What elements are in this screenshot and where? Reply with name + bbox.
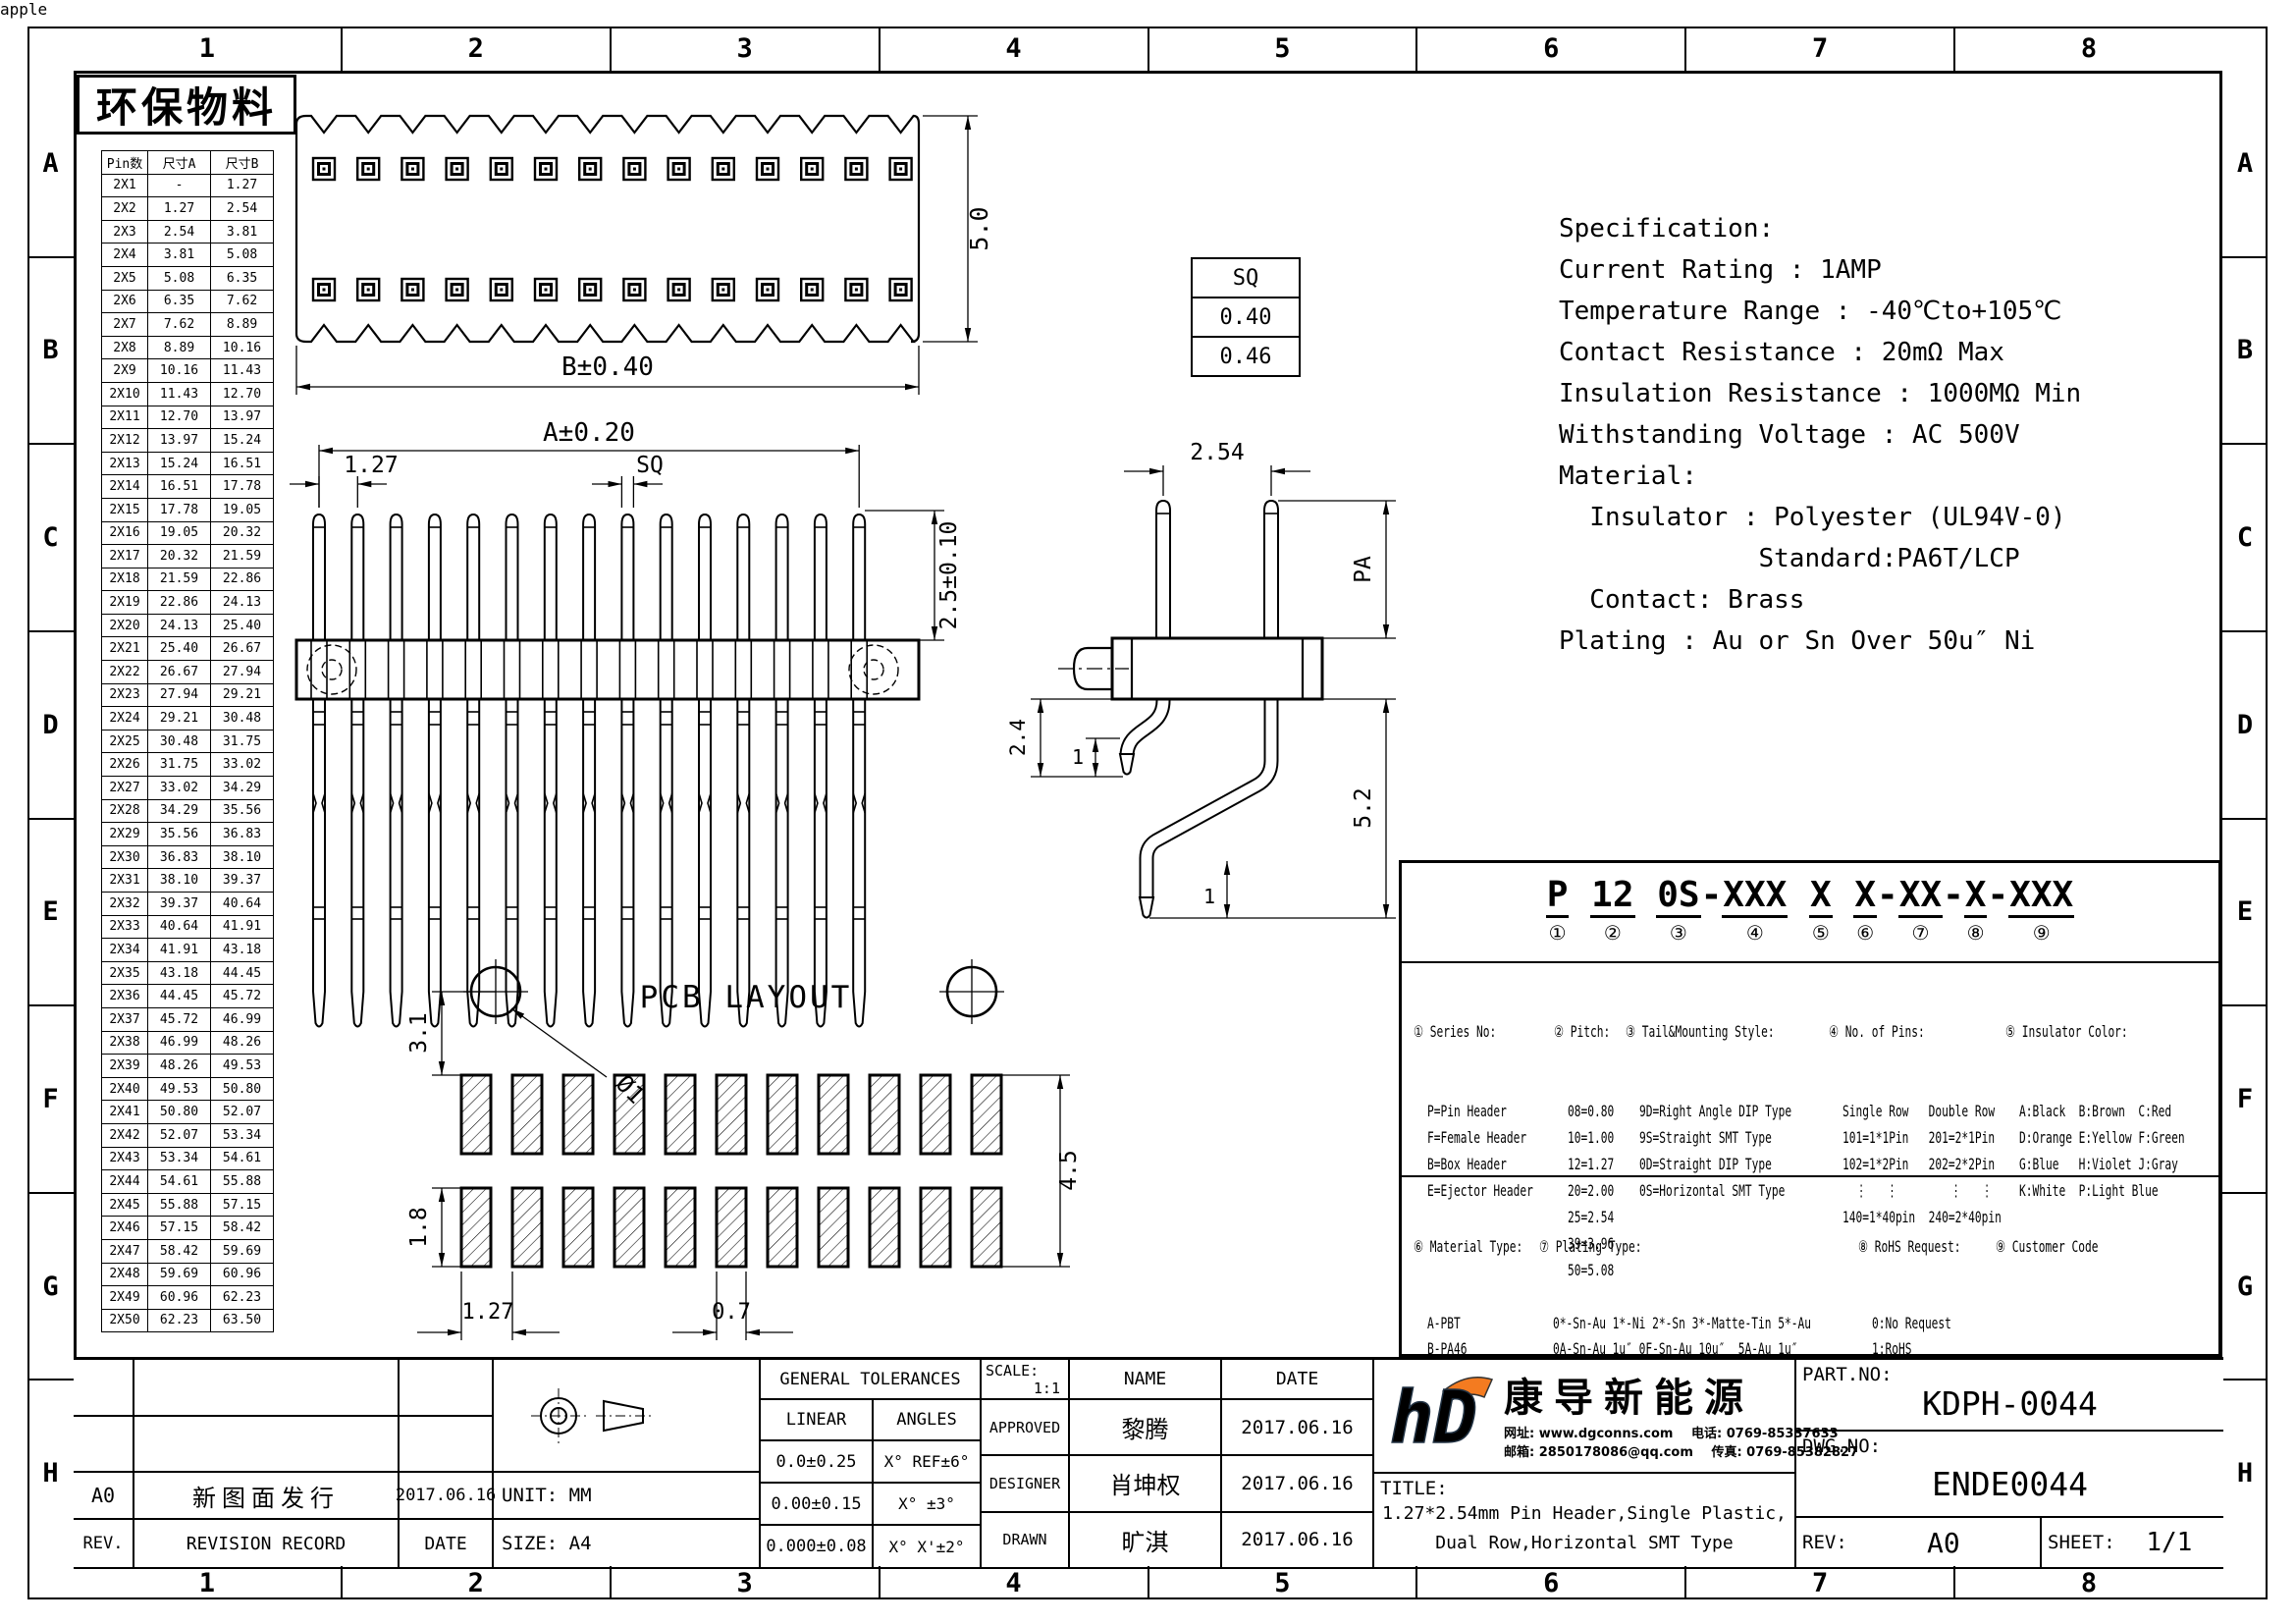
rev-empty — [74, 1360, 134, 1417]
rev-empty — [134, 1417, 400, 1473]
dim-body-height: 5.0 — [965, 206, 993, 250]
tolerances-title: GENERAL TOLERANCES — [761, 1360, 982, 1400]
spec-line: Contact: Brass — [1559, 579, 2081, 621]
dim-pin-square: SQ — [636, 453, 664, 478]
grid-col-label: 7 — [1686, 27, 1955, 71]
code-segment-index: ⑤ — [1812, 921, 1830, 945]
code-segment: X — [1964, 875, 1988, 918]
pin-table-row: 2X15 17.78 19.05 — [102, 498, 274, 521]
tol-angles-header: ANGLES — [874, 1400, 982, 1441]
unit-cell: UNIT: MM — [494, 1473, 761, 1520]
pin-table-row: 2X34 41.91 43.18 — [102, 939, 274, 962]
code-segment-index: ⑨ — [2033, 921, 2051, 945]
sq-size-table: SQ 0.40 0.46 — [1191, 257, 1301, 377]
code-separator: - — [1987, 875, 2008, 915]
pin-table-row: 2X3 2.54 3.81 — [102, 220, 274, 244]
grid-col-label: 4 — [881, 27, 1149, 71]
grid-col-label: 1 — [74, 1566, 343, 1599]
sq-header: SQ — [1192, 258, 1300, 298]
rev-empty — [74, 1417, 134, 1473]
pin-table-header: Pin数 尺寸A 尺寸B — [102, 151, 274, 175]
grid-row-label: F — [27, 1006, 74, 1194]
specification-block: Specification:Current Rating : 1AMPTempe… — [1559, 208, 2081, 662]
grid-row-label: C — [27, 445, 74, 632]
pin-table-row: 2X10 11.43 12.70 — [102, 382, 274, 406]
grid-col-label: 2 — [343, 27, 612, 71]
record-col-header: REVISION RECORD — [134, 1520, 400, 1569]
dim-pad-pitch: 1.27 — [462, 1300, 514, 1325]
sq-value-1: 0.40 — [1192, 298, 1300, 337]
pad-row-1 — [461, 1075, 1001, 1154]
rev-record: 新图面发行 — [134, 1473, 400, 1520]
drawing-title-line-2: Dual Row,Horizontal SMT Type — [1374, 1529, 1794, 1558]
pcb-layout-drawing: PCB LAYOUT Ø1 3.1 1.8 4.5 1.27 0.7 — [324, 943, 1090, 1355]
rev-empty — [400, 1360, 494, 1417]
spec-line: Insulation Resistance : 1000MΩ Min — [1559, 373, 2081, 414]
rev-cell: REV: A0 — [1796, 1518, 2042, 1569]
code-segment-index: ② — [1604, 921, 1622, 945]
ordering-divider-1 — [1402, 961, 2218, 963]
pin-table-row: 2X50 62.23 63.50 — [102, 1309, 274, 1332]
grid-row-label: F — [2222, 1006, 2268, 1194]
pin-table-row: 2X13 15.24 16.51 — [102, 452, 274, 475]
grid-col-label: 6 — [1417, 27, 1686, 71]
grid-band-left: ABCDEFGH — [27, 71, 74, 1566]
tol-linear-1: 0.0±0.25 — [761, 1441, 874, 1484]
drawing-sheet: 12345678 12345678 ABCDEFGH ABCDEFGH 环保物料… — [0, 0, 2296, 1624]
grid-row-label: E — [2222, 820, 2268, 1007]
approval-name: 黎腾 — [1070, 1400, 1222, 1456]
pin-table-row: 2X21 25.40 26.67 — [102, 637, 274, 661]
company-cell: hD 康导新能源 网址: www.dgconns.com 电话: 0769-85… — [1374, 1360, 1796, 1474]
dim-pin-exposed: 2.5±0.10 — [936, 521, 962, 630]
sheet-cell: SHEET: 1/1 — [2042, 1518, 2223, 1569]
code-segment: X — [1809, 875, 1833, 918]
spec-line: Current Rating : 1AMP — [1559, 249, 2081, 291]
spec-line: Standard:PA6T/LCP — [1559, 538, 2081, 579]
title-block: A0 新图面发行 2017.06.16 REV. REVISION RECORD… — [74, 1357, 2223, 1566]
contact-row-1 — [313, 158, 912, 180]
header-body-outline — [296, 116, 919, 342]
company-logo: hD — [1382, 1366, 1500, 1464]
code-separator: - — [1701, 875, 1723, 915]
top-view-drawing: 5.0 B±0.40 — [285, 98, 1001, 422]
rev-empty — [134, 1360, 400, 1417]
approval-role: APPROVED — [982, 1400, 1070, 1456]
pin-table-row: 2X11 12.70 13.97 — [102, 406, 274, 429]
code-segment: XXX — [2008, 875, 2074, 918]
grid-row-label: D — [27, 632, 74, 820]
pin-table-row: 2X38 46.99 48.26 — [102, 1031, 274, 1055]
code-segment-index: ⑥ — [1856, 921, 1874, 945]
third-angle-projection-icon — [521, 1381, 678, 1450]
dim-pitch: 1.27 — [344, 453, 398, 478]
code-separator — [1788, 875, 1809, 915]
pin-table-row: 2X43 53.34 54.61 — [102, 1147, 274, 1170]
grid-col-label: 5 — [1149, 1566, 1418, 1599]
pin-table-row: 2X44 54.61 55.88 — [102, 1170, 274, 1194]
grid-col-label: 5 — [1149, 27, 1418, 71]
pin-table-row: 2X2 1.27 2.54 — [102, 197, 274, 221]
pin-table-row: 2X32 39.37 40.64 — [102, 893, 274, 916]
smt-lead-short — [1120, 701, 1163, 775]
code-segment: XX — [1898, 875, 1943, 918]
pin-table-row: 2X39 48.26 49.53 — [102, 1055, 274, 1078]
code-separator — [1833, 875, 1854, 915]
part-no-cell: PART.NO: KDPH-0044 — [1796, 1360, 2223, 1432]
part-number-code: P ① 12 ② 0S ③ - XXX ④ — [1402, 875, 2218, 945]
side-pin-front — [1156, 501, 1170, 638]
pin-table-row: 2X6 6.35 7.62 — [102, 290, 274, 313]
pin-table-row: 2X23 27.94 29.21 — [102, 683, 274, 707]
grid-col-label: 3 — [612, 27, 881, 71]
grid-col-label: 7 — [1686, 1566, 1955, 1599]
dim-pad-width: 0.7 — [712, 1300, 751, 1325]
ordering-customer-code: ⑨ Customer Code — [1996, 1183, 2098, 1311]
spec-line: Temperature Range : -40℃to+105℃ — [1559, 291, 2081, 332]
pin-table-row: 2X20 24.13 25.40 — [102, 614, 274, 637]
pin-table-row: 2X30 36.83 38.10 — [102, 845, 274, 869]
tol-linear-3: 0.000±0.08 — [761, 1526, 874, 1569]
grid-band-right: ABCDEFGH — [2222, 71, 2268, 1566]
pin-dimension-table: Pin数 尺寸A 尺寸B 2X1 - 1.27 2X2 1.27 2.54 2X… — [101, 150, 274, 1332]
dim-pad-height: 1.8 — [406, 1207, 432, 1248]
pin-table-row: 2X12 13.97 15.24 — [102, 429, 274, 453]
pin-table-row: 2X27 33.02 34.29 — [102, 777, 274, 800]
grid-band-top: 12345678 — [74, 27, 2222, 71]
grid-row-label: A — [2222, 71, 2268, 258]
pin-table-row: 2X33 40.64 41.91 — [102, 915, 274, 939]
dim-body-width: B±0.40 — [561, 352, 654, 382]
tol-linear-header: LINEAR — [761, 1400, 874, 1441]
scale-cell: SCALE: 1:1 — [982, 1360, 1070, 1400]
eco-material-stamp: 环保物料 — [77, 75, 296, 135]
grid-row-label: H — [27, 1380, 74, 1566]
part-number: KDPH-0044 — [1922, 1384, 2098, 1423]
rev-empty — [400, 1417, 494, 1473]
spec-line: Plating : Au or Sn Over 50u″ Ni — [1559, 621, 2081, 662]
grid-col-label: 2 — [343, 1566, 612, 1599]
dim-pa: PA — [1351, 556, 1376, 583]
pin-table-row: 2X42 52.07 53.34 — [102, 1123, 274, 1147]
title-cell: TITLE: 1.27*2.54mm Pin Header,Single Pla… — [1374, 1474, 1796, 1569]
header-body-front — [296, 640, 919, 699]
pad-row-2 — [461, 1188, 1001, 1267]
size-cell: SIZE: A4 — [494, 1520, 761, 1569]
pin-table-row: 2X9 10.16 11.43 — [102, 359, 274, 383]
tol-angle-1: X° REF±6° — [874, 1441, 982, 1484]
spec-line: Withstanding Voltage : AC 500V — [1559, 414, 2081, 456]
grid-row-label: G — [2222, 1194, 2268, 1381]
grid-col-label: 8 — [1955, 1566, 2222, 1599]
code-separator: - — [1943, 875, 1964, 915]
approval-name: 肖坤权 — [1070, 1456, 1222, 1512]
header-body-side — [1112, 638, 1322, 699]
tol-linear-2: 0.00±0.15 — [761, 1484, 874, 1526]
grid-col-label: 4 — [881, 1566, 1149, 1599]
grid-row-label: B — [27, 258, 74, 446]
dim-lead-height: 5.2 — [1351, 787, 1376, 829]
pin-table-row: 2X8 8.89 10.16 — [102, 336, 274, 359]
pin-table-row: 2X37 45.72 46.99 — [102, 1007, 274, 1031]
spec-line: Specification: — [1559, 208, 2081, 249]
pin-table-row: 2X16 19.05 20.32 — [102, 521, 274, 545]
pin-table-row: 2X19 22.86 24.13 — [102, 591, 274, 615]
pin-table-row: 2X7 7.62 8.89 — [102, 313, 274, 337]
pin-table-row: 2X24 29.21 30.48 — [102, 707, 274, 731]
drawing-title-line-1: 1.27*2.54mm Pin Header,Single Plastic, — [1374, 1499, 1794, 1529]
code-segment: P — [1546, 875, 1570, 918]
pin-table-row: 2X25 30.48 31.75 — [102, 730, 274, 753]
code-segment-index: ① — [1549, 921, 1567, 945]
company-email: 邮箱: 2850178086@qq.com — [1504, 1445, 1693, 1460]
dwg-no-cell: DWG.NO: ENDE0044 — [1796, 1432, 2223, 1518]
rev-col-header: REV. — [74, 1520, 134, 1569]
side-view-drawing: 2.54 PA 2.4 1 5.2 1 — [1001, 422, 1414, 952]
mounting-hole-right — [939, 959, 1004, 1024]
code-segment: 12 — [1590, 875, 1634, 918]
code-segment: 0S — [1656, 875, 1700, 918]
dim-lead-tail-2: 1 — [1203, 885, 1215, 908]
grid-col-label: 8 — [1955, 27, 2222, 71]
grid-row-label: G — [27, 1194, 74, 1381]
date-col-header: DATE — [400, 1520, 494, 1569]
rev-id: A0 — [74, 1473, 134, 1520]
date-header: DATE — [1222, 1360, 1374, 1400]
pin-table-row: 2X5 5.08 6.35 — [102, 266, 274, 290]
pin-table-row: 2X40 49.53 50.80 — [102, 1077, 274, 1101]
grid-col-label: 6 — [1417, 1566, 1686, 1599]
code-separator — [1569, 875, 1590, 915]
grid-row-label: H — [2222, 1380, 2268, 1566]
grid-col-label: 1 — [74, 27, 343, 71]
pin-table-row: 2X45 55.88 57.15 — [102, 1193, 274, 1217]
pin-table-row: 2X49 60.96 62.23 — [102, 1286, 274, 1310]
pin-table-row: 2X46 57.15 58.42 — [102, 1217, 274, 1240]
approval-date: 2017.06.16 — [1222, 1456, 1374, 1512]
tol-angle-2: X° ±3° — [874, 1484, 982, 1526]
pin-table-row: 2X35 43.18 44.45 — [102, 961, 274, 985]
svg-text:hD: hD — [1390, 1376, 1477, 1460]
pin-table-row: 2X18 21.59 22.86 — [102, 568, 274, 591]
pin-table-row: 2X4 3.81 5.08 — [102, 244, 274, 267]
title-label: TITLE: — [1374, 1474, 1448, 1499]
pin-table-row: 2X48 59.69 60.96 — [102, 1263, 274, 1286]
code-segment: X — [1853, 875, 1877, 918]
code-separator — [1635, 875, 1657, 915]
revision-value: A0 — [1927, 1527, 1960, 1559]
ordering-info-box: P ① 12 ② 0S ③ - XXX ④ — [1399, 860, 2221, 1357]
approval-date: 2017.06.16 — [1222, 1400, 1374, 1456]
pin-table-row: 2X29 35.56 36.83 — [102, 823, 274, 846]
pin-table-row: 2X41 50.80 52.07 — [102, 1101, 274, 1124]
spec-line: Insulator : Polyester (UL94V-0) — [1559, 497, 2081, 538]
grid-row-label: B — [2222, 258, 2268, 446]
pin-table-row: 2X17 20.32 21.59 — [102, 545, 274, 568]
dim-lead-tail-1: 1 — [1072, 745, 1084, 769]
dim-lead-drop: 2.4 — [1006, 719, 1030, 756]
name-header: NAME — [1070, 1360, 1222, 1400]
approval-role: DRAWN — [982, 1513, 1070, 1569]
pcb-layout-title: PCB LAYOUT — [640, 980, 853, 1015]
pin-table-row: 2X14 16.51 17.78 — [102, 475, 274, 499]
side-pin-rear — [1264, 501, 1278, 638]
pin-table-row: 2X31 38.10 39.37 — [102, 869, 274, 893]
company-website: 网址: www.dgconns.com — [1504, 1427, 1673, 1441]
pin-table-row: 2X26 31.75 33.02 — [102, 753, 274, 777]
spec-line: Contact Resistance : 20mΩ Max — [1559, 332, 2081, 373]
contact-row-2 — [313, 279, 912, 300]
pin-table-row: 2X22 26.67 27.94 — [102, 661, 274, 684]
tol-angle-3: X° X'±2° — [874, 1526, 982, 1569]
grid-row-label: E — [27, 820, 74, 1007]
sq-value-2: 0.46 — [1192, 337, 1300, 376]
grid-row-label: D — [2222, 632, 2268, 820]
rev-date: 2017.06.16 — [400, 1473, 494, 1520]
approval-role: DESIGNER — [982, 1456, 1070, 1512]
grid-row-label: A — [27, 71, 74, 258]
grid-col-label: 3 — [612, 1566, 881, 1599]
approval-name: 旷淇 — [1070, 1513, 1222, 1569]
code-segment-index: ⑧ — [1967, 921, 1985, 945]
drawing-number: ENDE0044 — [1932, 1465, 2088, 1503]
grid-row-label: C — [2222, 445, 2268, 632]
approval-date: 2017.06.16 — [1222, 1513, 1374, 1569]
code-segment-index: ⑦ — [1911, 921, 1929, 945]
approvals: APPROVED 黎腾 2017.06.16 DESIGNER 肖坤权 2017… — [982, 1400, 1374, 1569]
dim-row-span: 4.5 — [1056, 1150, 1082, 1191]
projection-cell — [494, 1360, 761, 1473]
code-segment-index: ④ — [1746, 921, 1764, 945]
code-segment: XXX — [1722, 875, 1788, 918]
dim-row-pitch: 2.54 — [1190, 440, 1244, 465]
code-separator: - — [1877, 875, 1898, 915]
spec-line: Material: — [1559, 456, 2081, 497]
pin-table-row: 2X28 34.29 35.56 — [102, 799, 274, 823]
upper-pins — [313, 514, 865, 640]
pin-table-row: 2X36 44.45 45.72 — [102, 985, 274, 1008]
pin-table-row: 2X1 - 1.27 — [102, 174, 274, 197]
dim-hole-offset: 3.1 — [406, 1012, 432, 1054]
dim-pin-span: A±0.20 — [543, 418, 635, 448]
sheet-value: 1/1 — [2146, 1528, 2192, 1557]
grid-band-bottom: 12345678 — [74, 1566, 2222, 1599]
pin-table-row: 2X47 58.42 59.69 — [102, 1239, 274, 1263]
code-segment-index: ③ — [1670, 921, 1687, 945]
